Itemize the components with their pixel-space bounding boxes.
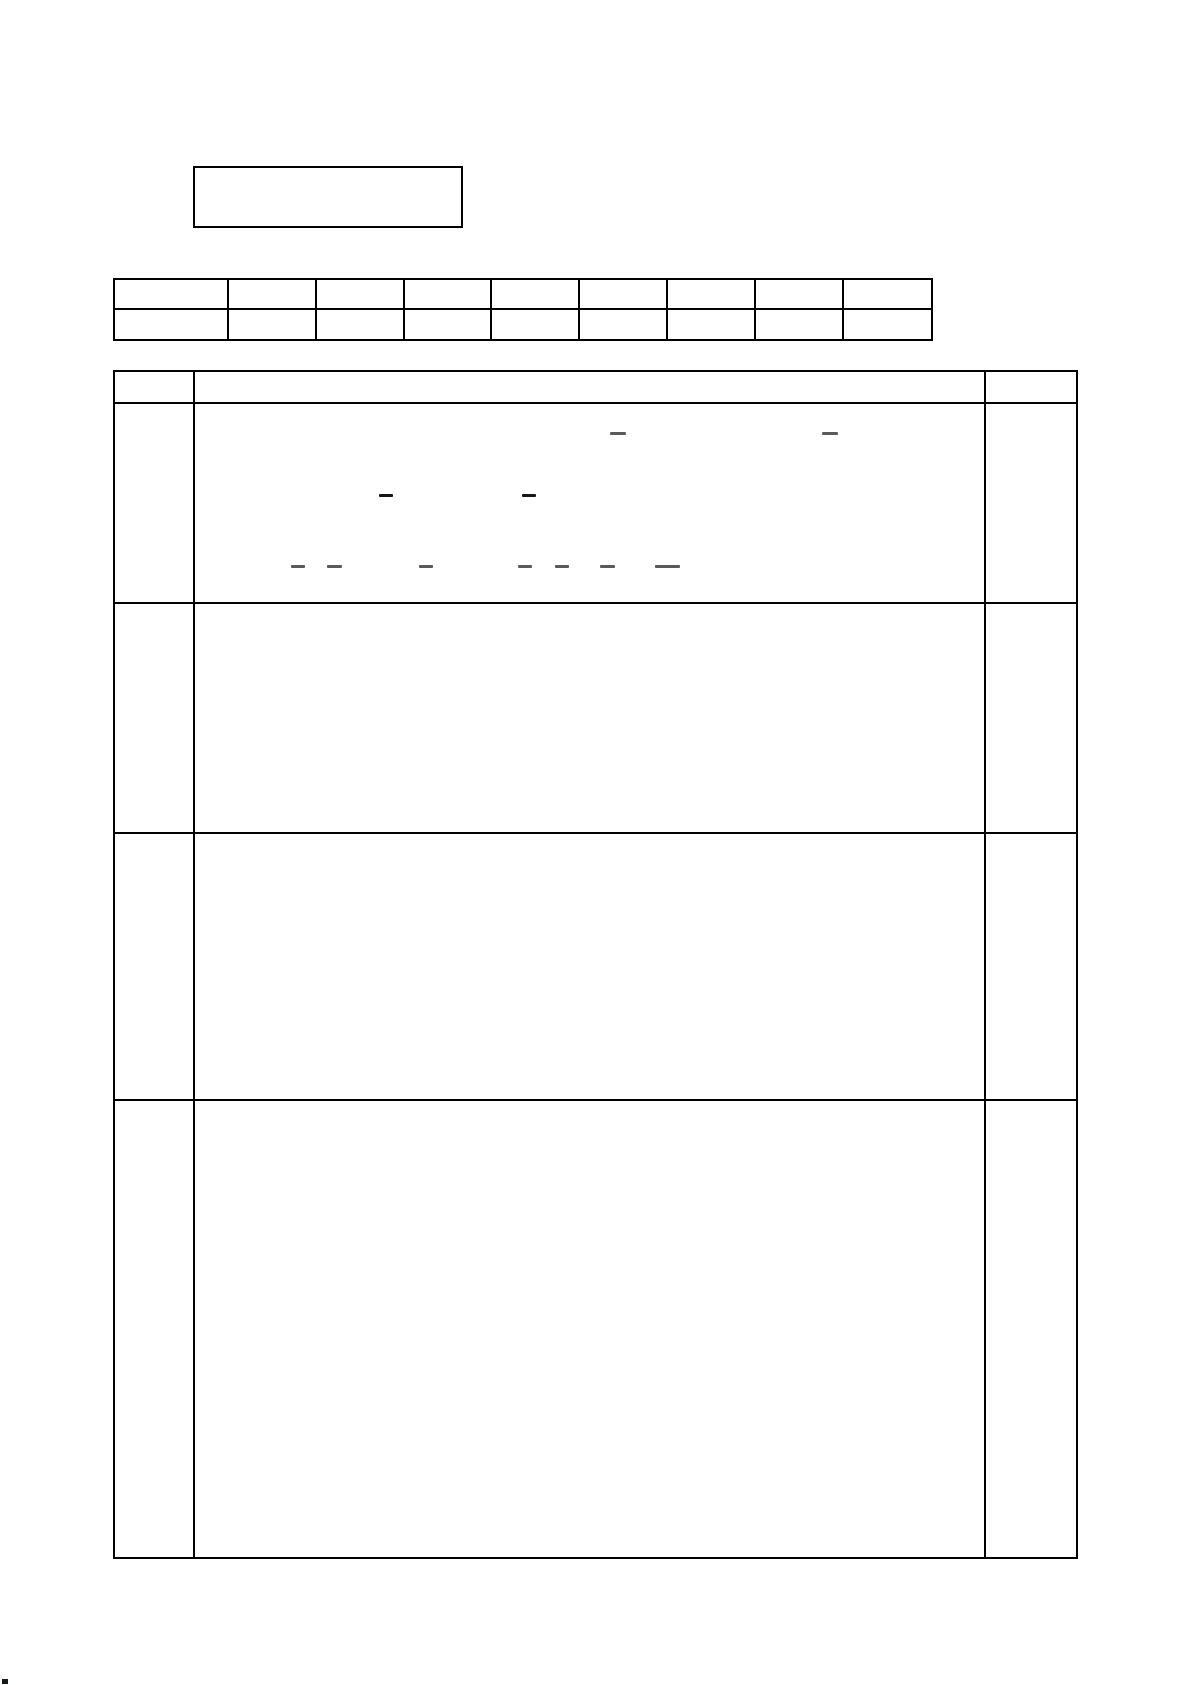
main-table-cell	[985, 603, 1077, 833]
header-grid-cell	[114, 279, 228, 309]
main-table-cell	[194, 833, 985, 1100]
main-form-table	[113, 370, 1078, 1559]
main-table-cell	[114, 603, 194, 833]
header-grid-cell	[667, 309, 755, 340]
handwritten-dash-mark	[822, 432, 838, 435]
handwritten-dash-mark	[555, 565, 569, 568]
header-grid-cell	[491, 309, 579, 340]
main-table-cell	[114, 833, 194, 1100]
header-grid-cell	[316, 309, 404, 340]
main-table-row	[114, 603, 1077, 833]
header-grid-row	[114, 309, 932, 340]
main-table-cell	[985, 403, 1077, 603]
handwritten-dash-mark	[610, 432, 626, 435]
header-grid-row	[114, 279, 932, 309]
empty-label-box	[193, 166, 463, 228]
main-table-row	[114, 833, 1077, 1100]
header-grid-cell	[228, 309, 316, 340]
main-table-cell	[114, 1100, 194, 1558]
header-grid-cell	[755, 309, 843, 340]
handwritten-dash-mark	[419, 565, 433, 568]
header-grid-cell	[228, 279, 316, 309]
header-grid-cell	[667, 279, 755, 309]
main-table-cell	[114, 403, 194, 603]
handwritten-dash-mark	[518, 565, 532, 568]
header-grid-cell	[755, 279, 843, 309]
header-grid-cell	[843, 279, 932, 309]
handwritten-dash-mark	[291, 565, 305, 568]
main-table-cell	[114, 371, 194, 403]
main-table-cell	[194, 1100, 985, 1558]
header-grid-table	[113, 278, 933, 341]
header-grid-cell	[114, 309, 228, 340]
scanned-form-page	[0, 0, 1192, 1685]
header-grid-cell	[843, 309, 932, 340]
main-table-header-row	[114, 371, 1077, 403]
handwritten-dash-mark	[522, 494, 536, 497]
main-table-cell	[985, 833, 1077, 1100]
header-grid-cell	[316, 279, 404, 309]
main-table-cell	[194, 403, 985, 603]
header-grid-cell	[404, 309, 491, 340]
main-table-cell	[985, 1100, 1077, 1558]
scan-artifact-dot	[2, 1679, 8, 1684]
header-grid-cell	[404, 279, 491, 309]
handwritten-dash-mark	[600, 565, 615, 568]
handwritten-dash-mark	[327, 565, 342, 568]
handwritten-dash-mark	[655, 565, 680, 568]
main-table-cell	[985, 371, 1077, 403]
main-table-row	[114, 403, 1077, 603]
main-table-cell	[194, 603, 985, 833]
handwritten-dash-mark	[379, 494, 393, 497]
header-grid-cell	[579, 309, 667, 340]
main-table-row	[114, 1100, 1077, 1558]
header-grid-cell	[491, 279, 579, 309]
header-grid-cell	[579, 279, 667, 309]
main-table-cell	[194, 371, 985, 403]
